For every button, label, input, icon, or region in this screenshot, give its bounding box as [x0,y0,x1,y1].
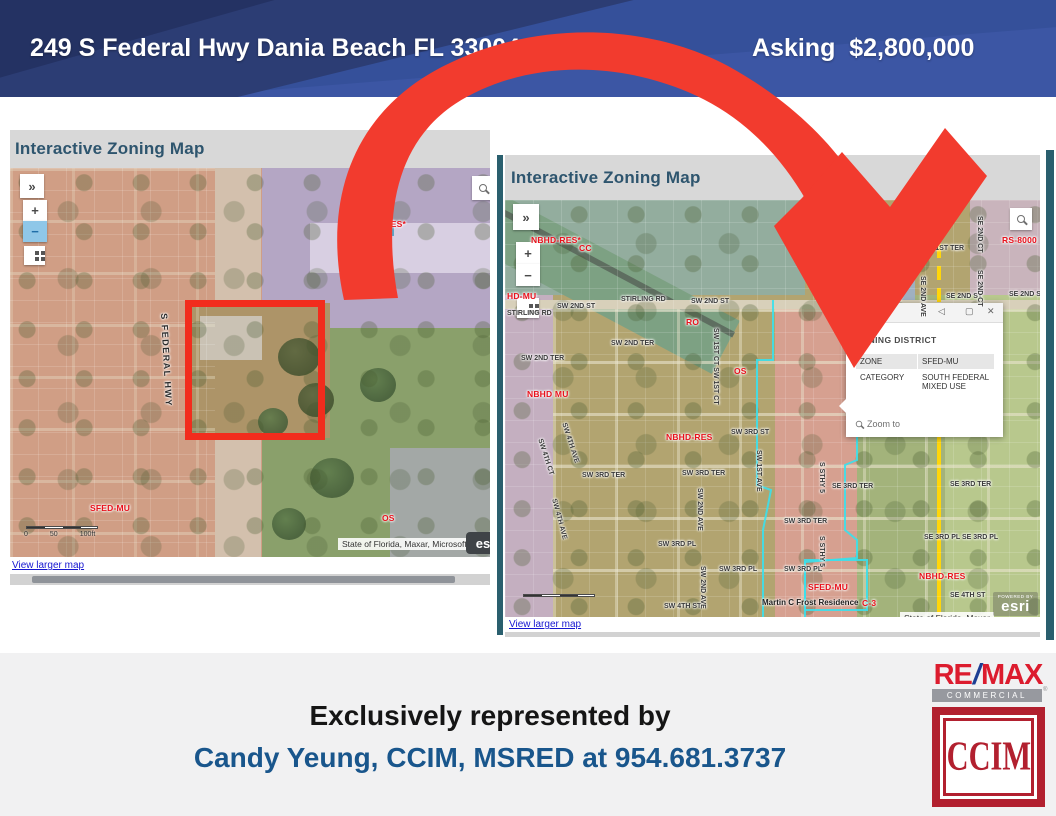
map-label: SW 2ND AVE [696,488,703,531]
remax-logo: RE/MAX [930,661,1046,690]
esri-logo: POWERED BY esri [993,592,1038,616]
popup-section-heading: ZONING DISTRICT [856,335,937,345]
horizontal-scrollbar[interactable] [10,574,490,585]
map-attribution: State of Florida, Maxar, Microsoft [338,538,471,550]
map-label: SE 2ND CT [976,216,983,253]
ccim-logo-core: CCIM [943,718,1034,796]
represented-by-text: Exclusively represented by [0,700,980,732]
map-label: SW 4TH AVE [560,422,580,464]
chevron-double-right-icon: » [28,179,35,194]
property-highlight-rectangle [185,300,325,440]
map-label: SE 1ST TER [924,245,964,252]
asking-price: Asking $2,800,000 [752,0,974,97]
ccim-logo-ring: CCIM [940,715,1037,799]
map-label: SE 4TH ST [950,592,985,599]
magnifier-icon [856,421,862,427]
remax-re: RE [934,659,972,691]
map-label: NBHD-RES [919,572,965,581]
attr-value: SOUTH FEDERAL MIXED USE [918,370,995,395]
chevron-double-right-icon: » [522,210,529,225]
popup-title: 2) [864,307,872,317]
map-label: SW 1ST AVE [755,450,762,492]
map-label: STIRLING RD [621,296,666,303]
map-label: SW 2ND ST [557,303,595,310]
popup-maximize-button[interactable]: ▢ [965,306,974,317]
remax-commercial-banner: COMMERCIAL [932,689,1042,702]
map-label: SW 3RD TER [784,518,827,525]
maximize-icon: ▢ [965,306,974,316]
view-larger-map-link[interactable]: View larger map [509,619,581,630]
map-label: CC [579,244,592,253]
ccim-logo: CCIM [932,707,1045,807]
zoom-to-button[interactable]: Zoom to [855,419,900,429]
map-label: SE 3RD PL SE 3RD PL [924,534,998,541]
scale-mid: 50 [50,531,58,538]
grid-icon [529,304,533,308]
map-label: SW 4TH ST [664,603,701,610]
map-label: SW 1ST CT SW 1ST CT [712,328,719,405]
map-label: SW 3RD PL [784,566,822,573]
map-label: SE 2ND ST [1009,291,1040,298]
esri-brand: esri [1001,599,1030,614]
map-label: SW 3RD PL [658,541,696,548]
map-label: HD-MU [507,292,536,301]
map-label: SE 2ND AVE [919,276,926,317]
search-icon [479,184,487,192]
map-label: SW 2ND ST [691,298,729,305]
scale-bar [523,594,595,597]
popup-collapse-button[interactable]: ◁ [938,306,945,317]
right-map-titlebar: Interactive Zoning Map [505,155,1040,200]
header-banner: 249 S Federal Hwy Dania Beach FL 33004 A… [0,0,1056,97]
chevron-left-icon: ◁ [938,306,945,316]
map-label: RS-8000 [1002,236,1037,245]
zoom-in-button[interactable]: + [23,200,47,221]
map-label: Martin C Frost Residence [762,599,858,607]
map-label: SE 2ND AVE [919,218,926,259]
map-label: idence [874,274,899,282]
left-map-linkrow: View larger map [10,557,490,574]
right-map-title: Interactive Zoning Map [511,168,701,188]
map-label: SFED-MU [808,583,848,592]
map-art [310,458,354,498]
right-map-viewport[interactable]: » + − 2) ◁ ▢ ✕ [505,200,1040,617]
map-label: S STHY 5 [818,462,825,493]
search-button[interactable] [472,176,490,200]
window-edge-left [497,155,503,635]
map-label: NBHD-RES [666,433,712,442]
search-icon [1017,215,1025,223]
scrollbar-thumb[interactable] [32,576,455,583]
footer: Exclusively represented by Candy Yeung, … [0,653,1056,816]
zoom-to-label: Zoom to [867,419,900,429]
table-row: ZONE SFED-MU [856,354,995,370]
map-label: 1ST TER [872,247,901,254]
left-map-titlebar: Interactive Zoning Map [10,130,490,168]
property-address: 249 S Federal Hwy Dania Beach FL 33004 [30,0,520,97]
minus-icon: − [524,268,532,283]
map-label: SW 2ND TER [521,355,564,362]
map-label: SW 3RD PL [719,566,757,573]
plus-icon: + [524,246,532,261]
zoom-out-button[interactable]: − [23,221,47,242]
map-label: C-3 [862,599,876,608]
agent-contact-text: Candy Yeung, CCIM, MSRED at 954.681.3737 [0,742,980,774]
minus-icon: − [31,224,39,239]
table-row: CATEGORY SOUTH FEDERAL MIXED USE [856,370,995,395]
map-label: OS [734,367,747,376]
attr-label: ZONE [856,354,918,370]
attr-label: CATEGORY [856,370,918,395]
page: 249 S Federal Hwy Dania Beach FL 33004 A… [0,0,1056,816]
zoom-out-button[interactable]: − [516,264,540,286]
map-art [360,368,396,402]
map-label: SW 3RD ST [731,429,769,436]
left-map-viewport[interactable]: » + − 0 50 100ft State of Florida, Maxar… [10,168,490,557]
esri-logo: es [466,532,490,554]
popup-close-button[interactable]: ✕ [987,306,995,317]
map-art [310,223,490,273]
plus-icon: + [31,203,39,218]
map-label: SW 3RD TER [582,472,625,479]
map-art [272,508,306,540]
expand-panel-button[interactable]: » [20,174,44,198]
basemap-gallery-button[interactable] [24,246,45,265]
map-label: SE 3RD TER [950,481,991,488]
map-label: SFED-MU [90,504,130,513]
popup-attribute-table: ZONE SFED-MU CATEGORY SOUTH FEDERAL MIXE… [855,353,995,395]
expand-panel-button[interactable]: » [513,204,539,230]
map-label: SE 2ND CT [976,270,983,307]
zoning-district-popup: 2) ◁ ▢ ✕ ZONING DISTRICT ZONE SFED-MU C [846,303,1003,437]
map-label: NBHD-RES* [356,220,406,229]
view-larger-map-link[interactable]: View larger map [12,560,84,571]
map-label: STIRLING RD [507,310,552,317]
window-edge-right [1046,150,1054,640]
remax-max: MAX [981,659,1042,691]
scale-start: 0 [24,531,28,538]
map-label: SW 2ND TER [611,340,654,347]
map-label: SW 3RD TER [682,470,725,477]
map-label: SE 3RD TER [832,483,873,490]
close-icon: ✕ [987,306,995,316]
map-label: NBHD-RES* [531,236,581,245]
map-label: RO [686,318,699,327]
scale-labels: 0 50 100ft [24,531,95,538]
search-button[interactable] [1010,208,1032,230]
map-label: SE 2ND ST [866,296,902,303]
map-label: NBHD MU [527,390,569,399]
attr-value: SFED-MU [918,354,995,370]
right-map-scroll-strip [505,632,1040,637]
remax-slash: / [972,659,981,691]
ccim-text: CCIM [946,734,1030,780]
map-label: S STHY 5 [818,536,825,567]
grid-icon [35,251,39,255]
popup-pointer [839,399,846,413]
map-label: SW 2ND AVE [699,566,706,609]
zoom-in-button[interactable]: + [516,242,540,264]
scale-bar [26,526,98,529]
left-map-title: Interactive Zoning Map [15,139,205,159]
right-map-linkrow: View larger map [505,617,1040,632]
scale-end: 100ft [80,531,96,538]
map-label: OS [382,514,395,523]
registered-mark: ® [1043,687,1047,693]
